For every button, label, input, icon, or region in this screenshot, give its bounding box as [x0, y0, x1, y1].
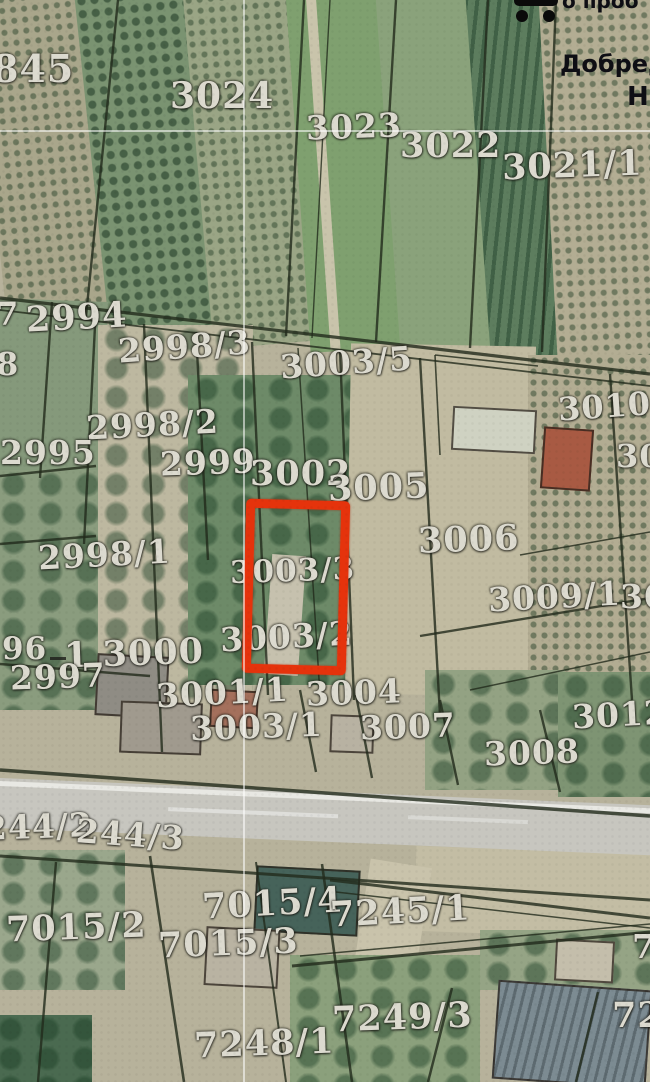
- corner-place-text: Добред: [560, 52, 650, 76]
- corner-top-text: о проб: [562, 0, 639, 11]
- scanline-vertical: [243, 0, 245, 1082]
- grain-overlay: [0, 0, 650, 1082]
- corner-letter-text: Н: [627, 84, 649, 110]
- menu-dot: [516, 10, 528, 22]
- menu-dots-icon[interactable]: [512, 0, 562, 22]
- cadastral-map-canvas[interactable]: 845 3024 3023 3022 3021/1 7 2994 2998/3 …: [0, 0, 650, 1082]
- menu-dot: [543, 10, 555, 22]
- menu-dots-bar: [514, 0, 558, 6]
- scanline-horizontal: [0, 130, 650, 132]
